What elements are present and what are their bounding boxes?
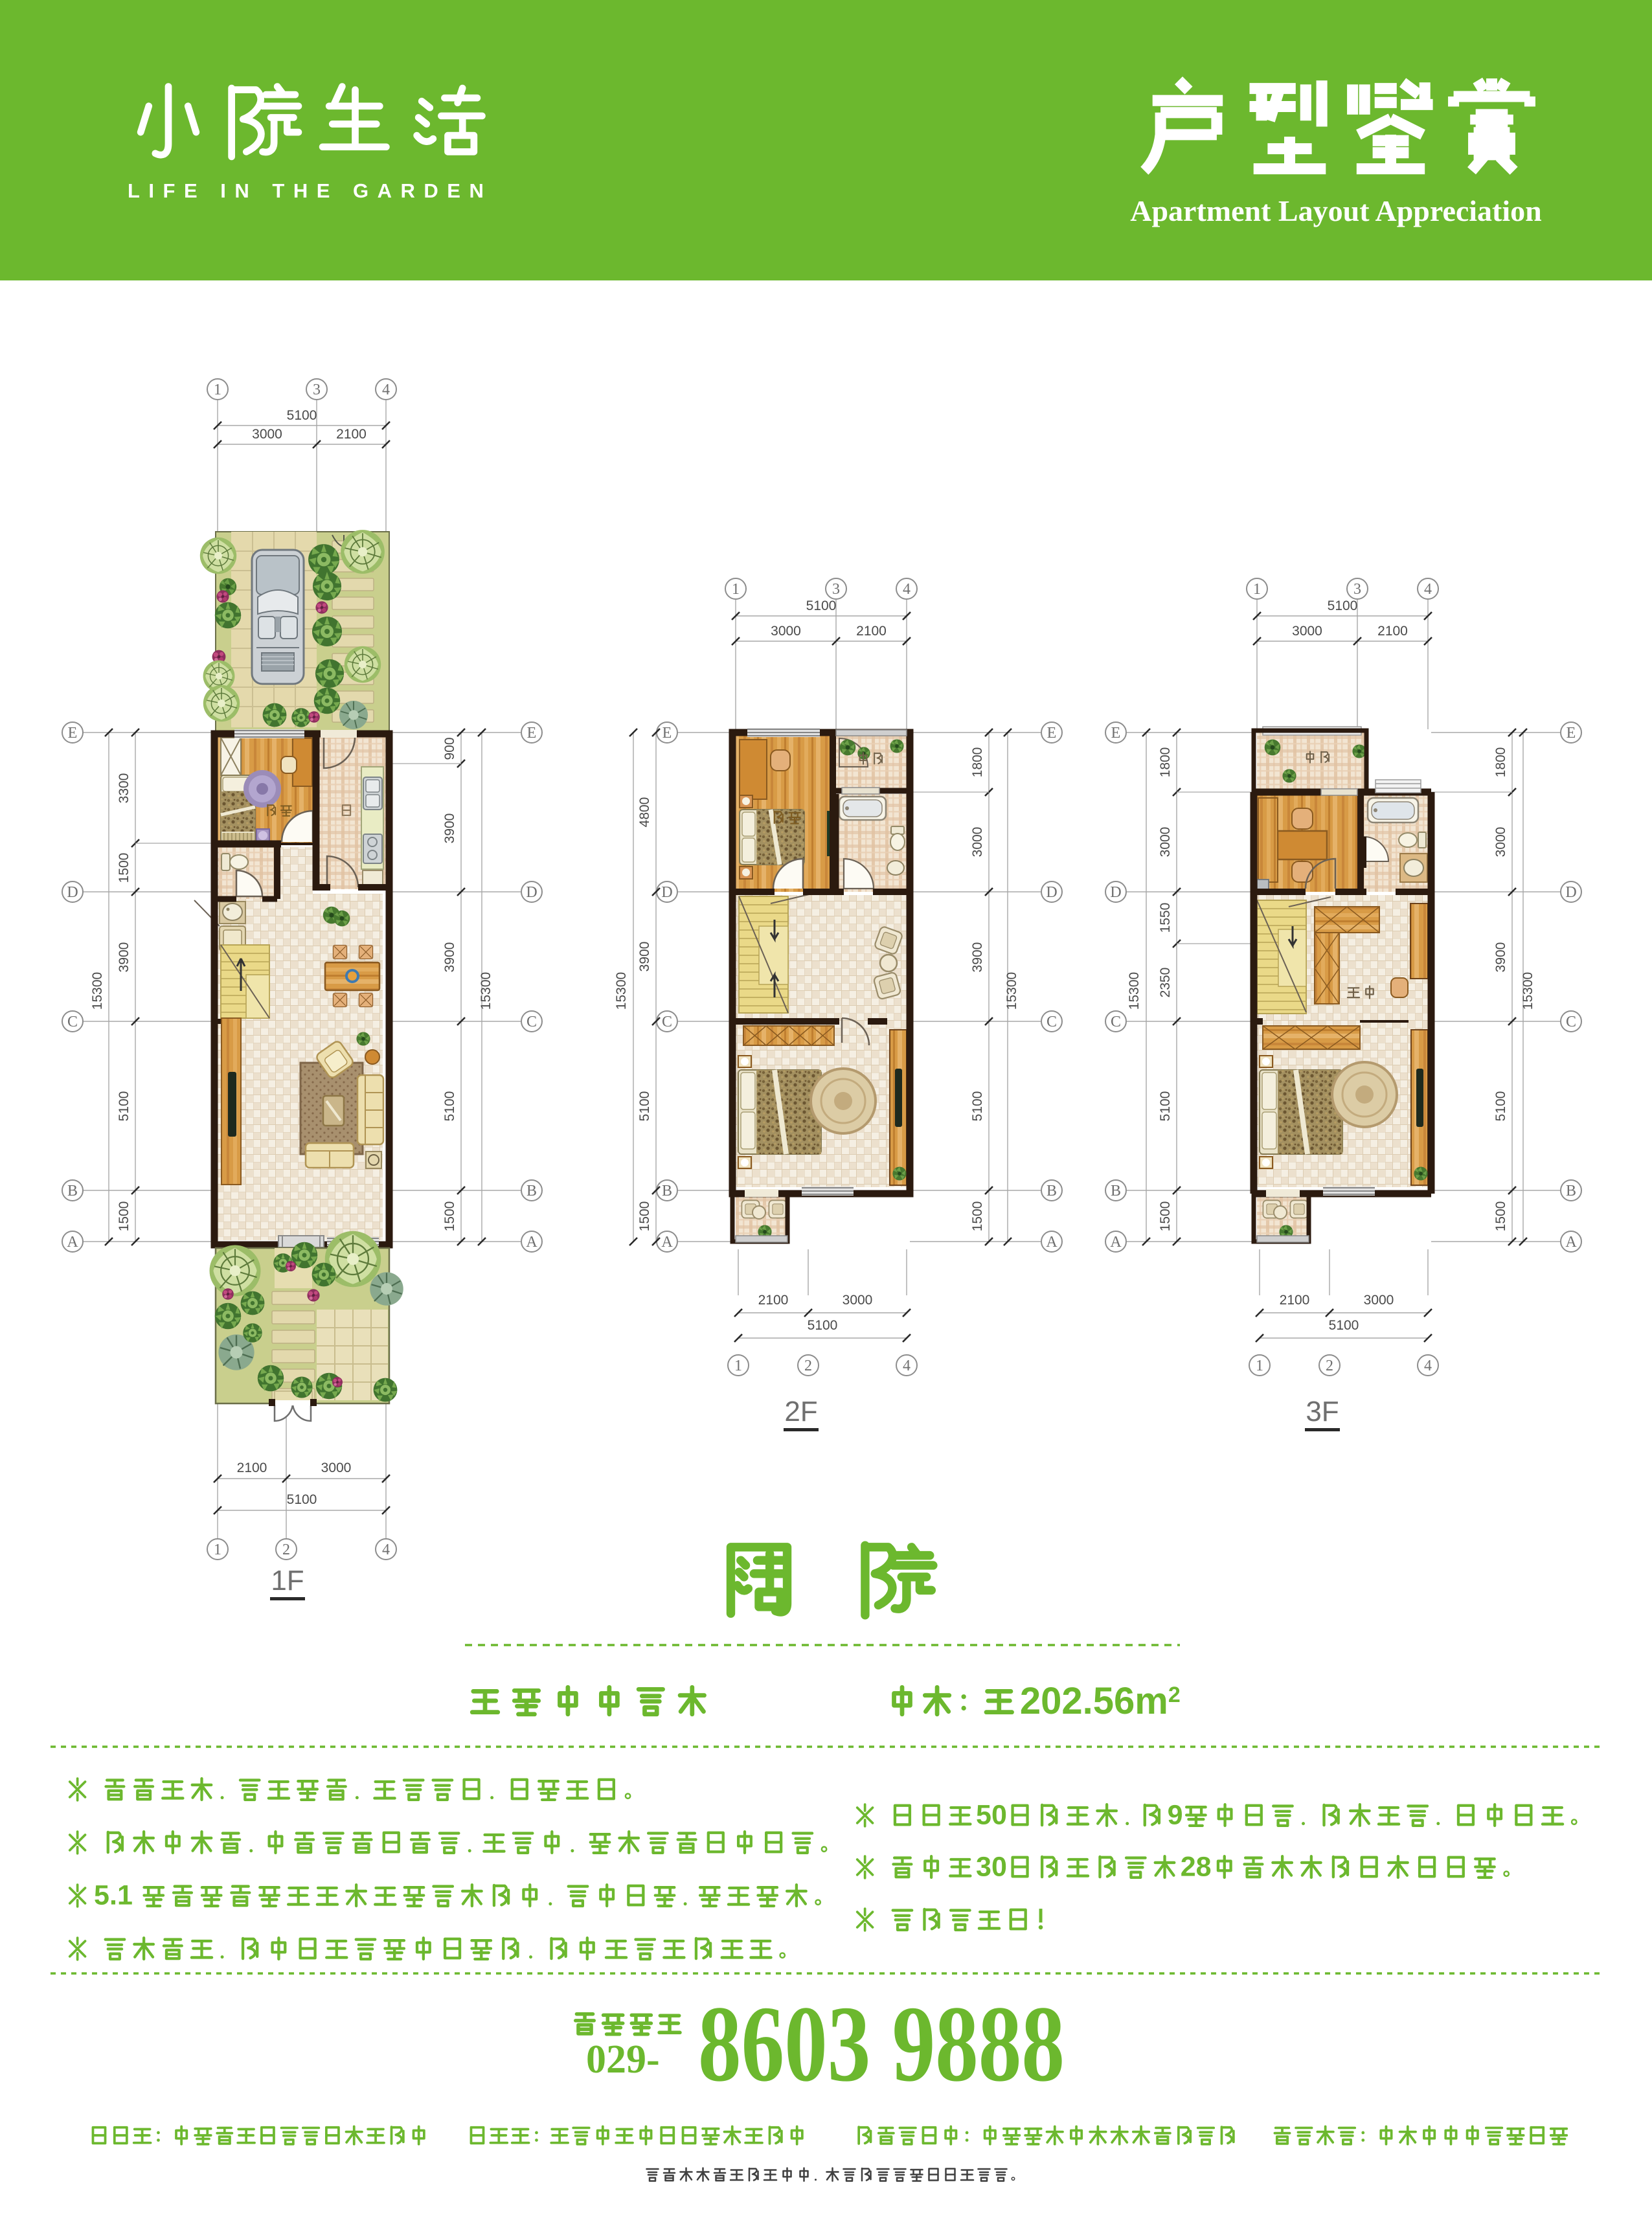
svg-text:B: B bbox=[1566, 1183, 1576, 1199]
svg-text:9: 9 bbox=[1168, 1799, 1183, 1830]
svg-text:2100: 2100 bbox=[336, 427, 367, 442]
svg-text:2100: 2100 bbox=[1377, 624, 1408, 639]
svg-text:5100: 5100 bbox=[970, 1091, 985, 1122]
svg-text:5.1: 5.1 bbox=[94, 1880, 133, 1911]
svg-text:4: 4 bbox=[903, 581, 911, 598]
svg-text:2: 2 bbox=[804, 1357, 812, 1374]
svg-text:15300: 15300 bbox=[614, 972, 629, 1010]
svg-text:5100: 5100 bbox=[808, 1318, 838, 1333]
svg-text:1: 1 bbox=[214, 1541, 221, 1558]
svg-text:3000: 3000 bbox=[1292, 624, 1322, 639]
svg-text:15300: 15300 bbox=[1004, 972, 1019, 1010]
svg-text:1500: 1500 bbox=[637, 1201, 652, 1232]
svg-text:1500: 1500 bbox=[1158, 1201, 1173, 1232]
svg-text:D: D bbox=[1046, 884, 1057, 901]
svg-text:1800: 1800 bbox=[1158, 747, 1173, 778]
svg-text:E: E bbox=[527, 725, 537, 742]
svg-text:C: C bbox=[1111, 1014, 1121, 1030]
svg-text:Apartment Layout Appreciation: Apartment Layout Appreciation bbox=[1130, 194, 1542, 227]
svg-text:1550: 1550 bbox=[1158, 903, 1173, 933]
svg-text:3: 3 bbox=[832, 581, 840, 598]
svg-text:4: 4 bbox=[382, 381, 390, 398]
svg-text:3300: 3300 bbox=[117, 773, 131, 804]
svg-text:50: 50 bbox=[976, 1799, 1007, 1830]
svg-text:1500: 1500 bbox=[442, 1201, 457, 1232]
svg-text:3900: 3900 bbox=[970, 942, 985, 973]
svg-text:3000: 3000 bbox=[771, 624, 801, 639]
svg-text:E: E bbox=[1567, 725, 1576, 742]
svg-text:5100: 5100 bbox=[1328, 598, 1358, 613]
svg-text:5100: 5100 bbox=[1329, 1318, 1359, 1333]
svg-text:3900: 3900 bbox=[442, 942, 457, 973]
svg-text:B: B bbox=[526, 1183, 537, 1199]
svg-text:15300: 15300 bbox=[1521, 972, 1535, 1010]
svg-text:202.56m2: 202.56m2 bbox=[1020, 1680, 1181, 1722]
svg-text:B: B bbox=[67, 1183, 78, 1199]
svg-text:B: B bbox=[662, 1183, 672, 1199]
svg-text:A: A bbox=[1046, 1234, 1058, 1251]
svg-text:E: E bbox=[1047, 725, 1057, 742]
svg-text:A: A bbox=[1110, 1234, 1122, 1251]
svg-text:1500: 1500 bbox=[117, 853, 131, 883]
svg-text:C: C bbox=[1047, 1014, 1057, 1030]
svg-text:A: A bbox=[526, 1234, 537, 1251]
svg-text:5100: 5100 bbox=[117, 1091, 131, 1122]
svg-text:E: E bbox=[68, 725, 78, 742]
svg-text:1800: 1800 bbox=[970, 747, 985, 778]
svg-text:15300: 15300 bbox=[90, 972, 105, 1010]
svg-text:1: 1 bbox=[214, 381, 221, 398]
svg-text:3900: 3900 bbox=[637, 942, 652, 972]
svg-text:LIFE IN THE GARDEN: LIFE IN THE GARDEN bbox=[128, 179, 492, 202]
svg-text:3900: 3900 bbox=[117, 942, 131, 973]
svg-text:4: 4 bbox=[1424, 581, 1432, 598]
svg-text:3900: 3900 bbox=[1493, 942, 1508, 973]
svg-text:3: 3 bbox=[313, 381, 321, 398]
svg-text:3F: 3F bbox=[1306, 1396, 1339, 1427]
svg-text:1: 1 bbox=[1256, 1357, 1263, 1374]
svg-text:2100: 2100 bbox=[758, 1293, 789, 1308]
svg-text:1: 1 bbox=[732, 581, 740, 598]
svg-text:D: D bbox=[1110, 884, 1121, 901]
svg-text:2100: 2100 bbox=[1280, 1293, 1310, 1308]
svg-text:2: 2 bbox=[282, 1541, 290, 1558]
svg-text:2: 2 bbox=[1326, 1357, 1333, 1374]
svg-text:D: D bbox=[1565, 884, 1576, 901]
svg-text:2100: 2100 bbox=[856, 624, 887, 639]
svg-text:900: 900 bbox=[442, 737, 457, 760]
svg-text:4800: 4800 bbox=[637, 797, 652, 828]
svg-text:1500: 1500 bbox=[1493, 1201, 1508, 1232]
svg-text:1: 1 bbox=[1253, 581, 1261, 598]
svg-text:2350: 2350 bbox=[1158, 968, 1173, 998]
svg-text:5100: 5100 bbox=[1493, 1091, 1508, 1122]
svg-text:3000: 3000 bbox=[1158, 827, 1173, 857]
svg-text:30: 30 bbox=[976, 1851, 1007, 1882]
svg-text:2100: 2100 bbox=[237, 1460, 267, 1475]
svg-text:5100: 5100 bbox=[442, 1091, 457, 1122]
svg-text:15300: 15300 bbox=[479, 972, 493, 1010]
svg-text:1500: 1500 bbox=[117, 1201, 131, 1232]
svg-text:1: 1 bbox=[734, 1357, 742, 1374]
svg-text:5100: 5100 bbox=[1158, 1091, 1173, 1122]
svg-text:1F: 1F bbox=[271, 1565, 304, 1596]
svg-text:5100: 5100 bbox=[287, 1492, 317, 1507]
svg-text:3000: 3000 bbox=[970, 827, 985, 857]
svg-text:3000: 3000 bbox=[843, 1293, 873, 1308]
svg-text:28: 28 bbox=[1181, 1851, 1212, 1882]
svg-text:A: A bbox=[67, 1234, 78, 1251]
svg-text:B: B bbox=[1111, 1183, 1121, 1199]
svg-text:3900: 3900 bbox=[442, 813, 457, 844]
svg-text:C: C bbox=[526, 1014, 537, 1030]
svg-text:029-: 029- bbox=[586, 2038, 660, 2082]
svg-text:5100: 5100 bbox=[806, 598, 837, 613]
svg-text:5100: 5100 bbox=[287, 408, 317, 423]
svg-text:E: E bbox=[1111, 725, 1121, 742]
svg-text:A: A bbox=[661, 1234, 673, 1251]
svg-text:4: 4 bbox=[903, 1357, 911, 1374]
svg-text:8603 9888: 8603 9888 bbox=[698, 1984, 1065, 2104]
svg-text:3: 3 bbox=[1353, 581, 1361, 598]
svg-text:3000: 3000 bbox=[252, 427, 282, 442]
svg-text:C: C bbox=[662, 1014, 672, 1030]
svg-text:D: D bbox=[67, 884, 78, 901]
svg-text:15300: 15300 bbox=[1127, 972, 1142, 1010]
svg-text:4: 4 bbox=[1424, 1357, 1432, 1374]
svg-text:4: 4 bbox=[382, 1541, 390, 1558]
svg-text:3000: 3000 bbox=[1364, 1293, 1394, 1308]
svg-text:A: A bbox=[1565, 1234, 1577, 1251]
svg-text:C: C bbox=[1566, 1014, 1576, 1030]
svg-text:5100: 5100 bbox=[637, 1091, 652, 1122]
svg-text:D: D bbox=[526, 884, 537, 901]
svg-text:B: B bbox=[1047, 1183, 1057, 1199]
svg-text:1500: 1500 bbox=[970, 1201, 985, 1232]
svg-text:E: E bbox=[662, 725, 672, 742]
svg-text:3000: 3000 bbox=[321, 1460, 352, 1475]
svg-text:2F: 2F bbox=[784, 1396, 817, 1427]
svg-text:C: C bbox=[67, 1014, 78, 1030]
svg-text:1800: 1800 bbox=[1493, 747, 1508, 778]
svg-text:D: D bbox=[661, 884, 672, 901]
svg-text:3000: 3000 bbox=[1493, 827, 1508, 857]
